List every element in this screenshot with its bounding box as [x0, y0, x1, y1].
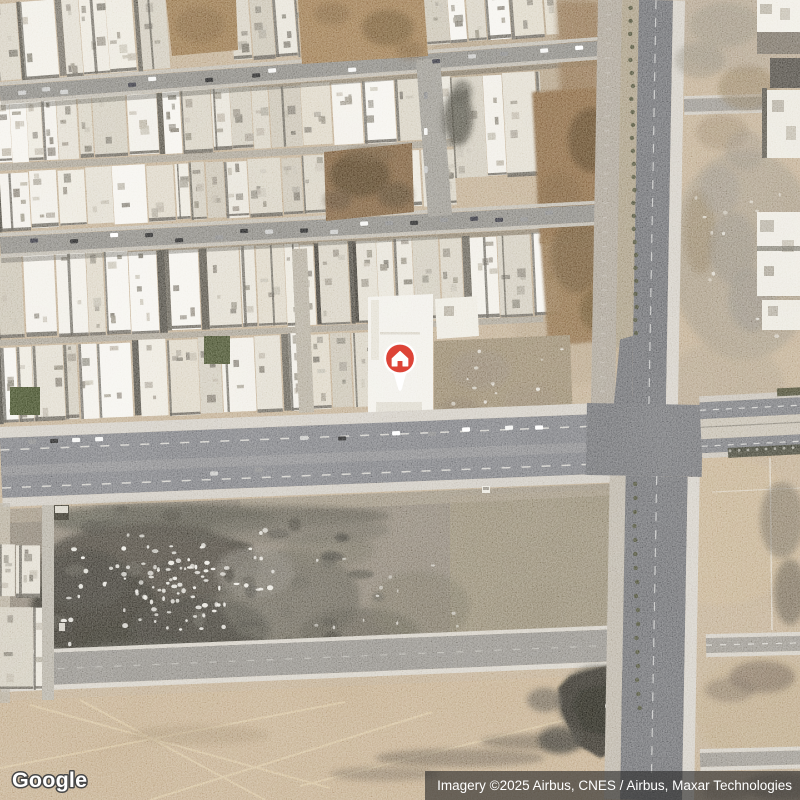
svg-text:Google: Google — [12, 768, 87, 792]
